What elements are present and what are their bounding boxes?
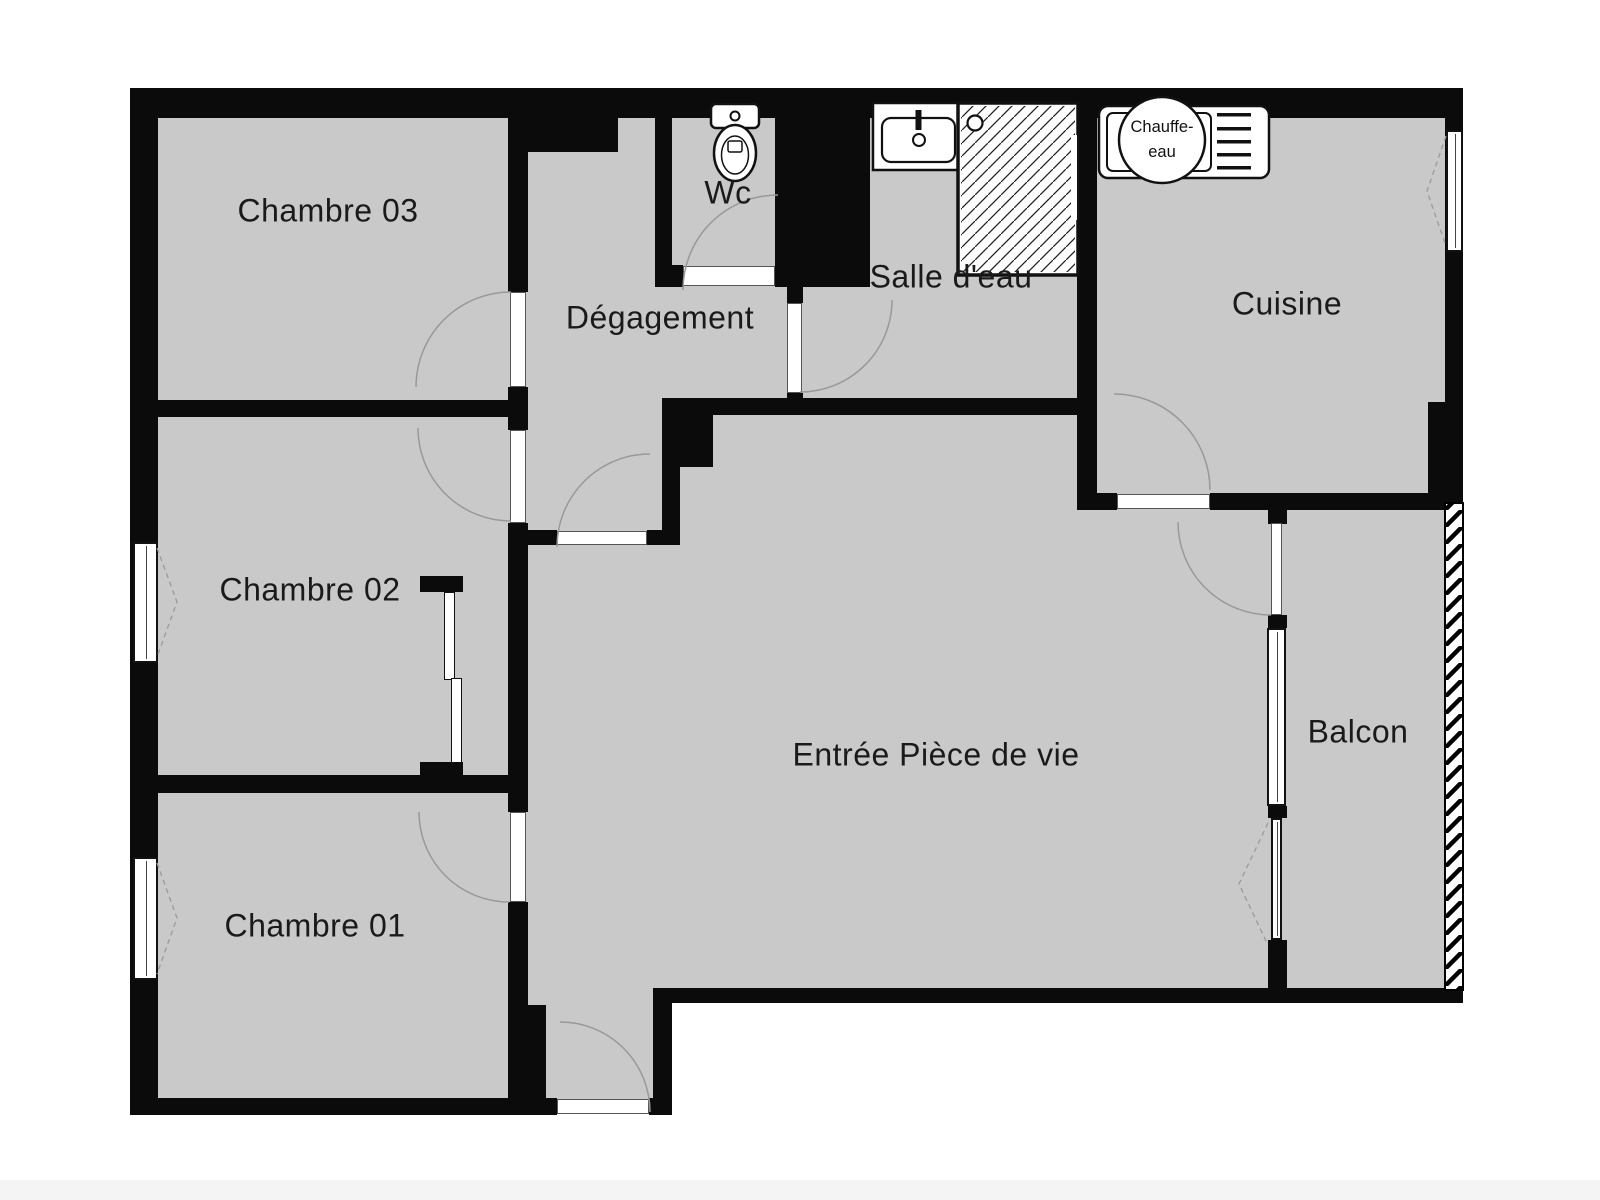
door-arc-chambre03 xyxy=(416,292,511,387)
door-arc-chambre01 xyxy=(419,812,509,902)
window-chevron-balcony xyxy=(1239,823,1268,945)
room-label-entree: Entrée Pièce de vie xyxy=(793,737,1080,774)
window-chevron-chambre02 xyxy=(157,548,177,657)
room-label-cuisine: Cuisine xyxy=(1232,286,1342,323)
room-label-wc: Wc xyxy=(704,175,751,212)
door-arc-cuisine xyxy=(1114,394,1210,490)
door-arc-salle-d-eau xyxy=(800,300,892,392)
door-arc-chambre02 xyxy=(418,428,511,521)
water-heater-label-line2: eau xyxy=(1148,143,1176,161)
floor-plan: Chauffe- eau Chambre 03 Chambre 02 Chamb… xyxy=(0,0,1600,1200)
balcony-railing xyxy=(1445,503,1463,990)
door-arc-balcon xyxy=(1178,522,1271,615)
room-label-degagement: Dégagement xyxy=(566,300,754,337)
door-arc-degagement xyxy=(557,454,650,547)
room-label-balcon: Balcon xyxy=(1308,714,1409,751)
shower-icon xyxy=(958,103,1078,275)
room-label-salle-d-eau: Salle d'eau xyxy=(870,259,1033,296)
room-label-chambre02: Chambre 02 xyxy=(219,572,400,609)
water-heater-icon: Chauffe- eau xyxy=(1119,97,1205,183)
sink-icon xyxy=(873,103,958,170)
water-heater-label-line1: Chauffe- xyxy=(1131,118,1194,136)
window-chevron-cuisine xyxy=(1427,136,1446,246)
toilet-icon xyxy=(711,104,759,181)
background-band xyxy=(0,1180,1600,1200)
room-label-chambre03: Chambre 03 xyxy=(237,193,418,230)
window-chevron-chambre01 xyxy=(157,863,177,974)
room-label-chambre01: Chambre 01 xyxy=(224,908,405,945)
door-arc-entry xyxy=(560,1022,650,1112)
